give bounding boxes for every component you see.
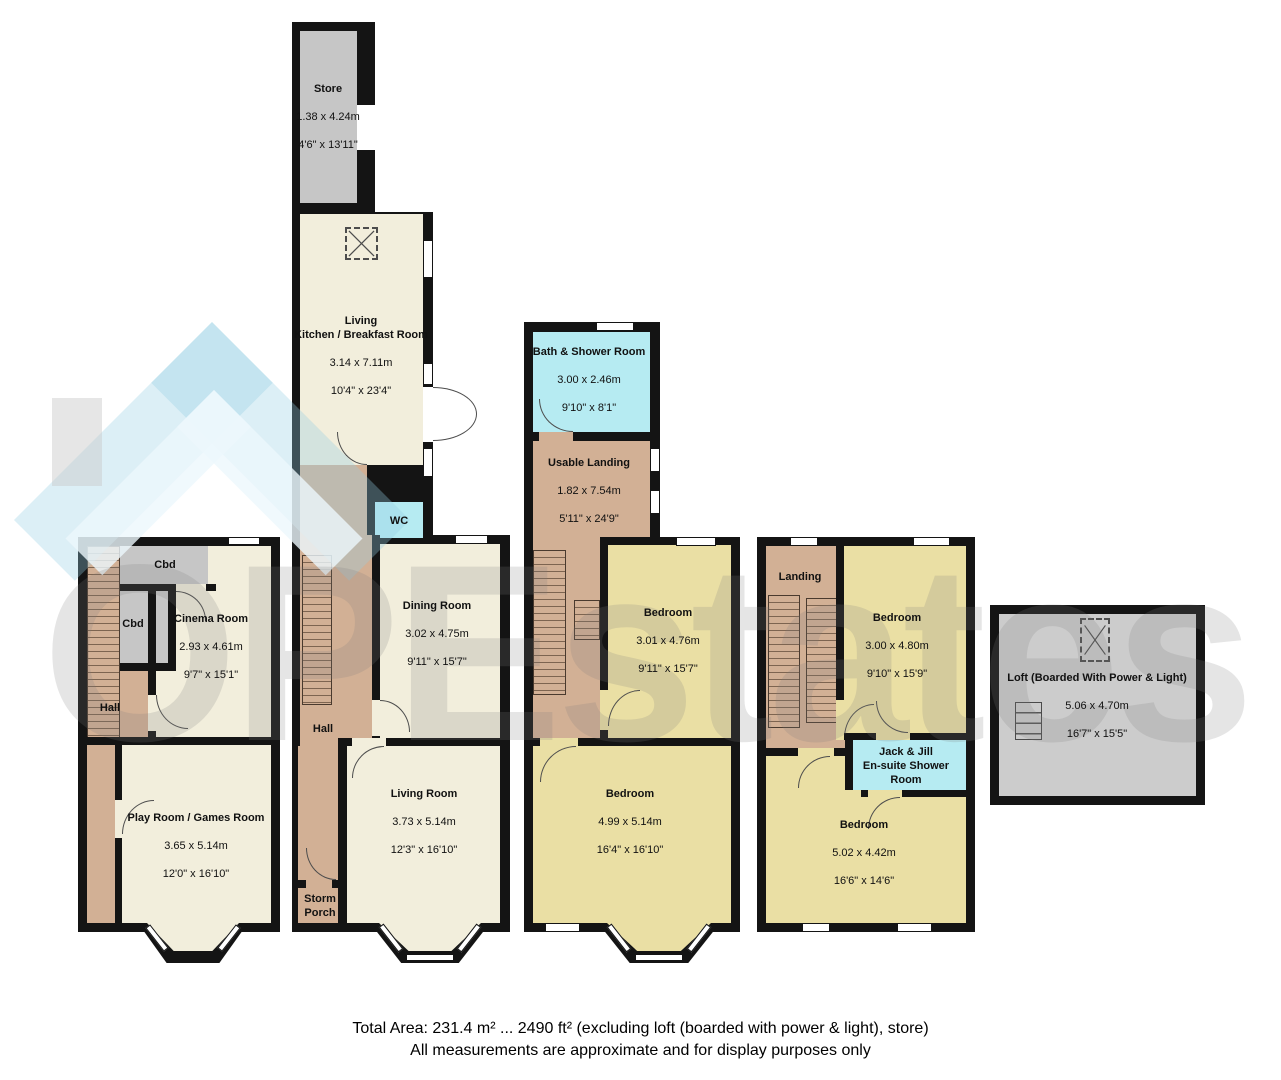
label-cbd1: Cbd bbox=[154, 544, 175, 586]
door-gap bbox=[539, 432, 573, 441]
room-name: Hall bbox=[313, 722, 333, 736]
room-dim-imperial: 9'10" x 8'1" bbox=[533, 401, 645, 415]
room-dim-metric: 3.73 x 5.14m bbox=[391, 815, 458, 829]
window bbox=[545, 923, 580, 932]
window bbox=[596, 322, 634, 331]
room-name: Bedroom bbox=[597, 787, 663, 801]
room-dim-imperial: 16'6" x 14'6" bbox=[832, 874, 896, 888]
label-usable-landing: Usable Landing 1.82 x 7.54m 5'11" x 24'9… bbox=[548, 442, 630, 540]
door-gap bbox=[176, 584, 206, 591]
room-dim-imperial: 16'4" x 16'10" bbox=[597, 843, 663, 857]
skylight-icon bbox=[345, 227, 378, 260]
window bbox=[423, 240, 433, 278]
room-dim-metric: 2.93 x 4.61m bbox=[174, 640, 248, 654]
door-gap bbox=[352, 738, 386, 746]
door-gap bbox=[148, 695, 156, 731]
label-bedroom1: Bedroom 3.01 x 4.76m 9'11" x 15'7" bbox=[636, 592, 700, 690]
room-name: Cinema Room bbox=[174, 612, 248, 626]
room-dim-imperial: 5'11" x 24'9" bbox=[548, 512, 630, 526]
hall-stair-landing bbox=[300, 465, 367, 545]
room-name: Cbd bbox=[154, 558, 175, 572]
room-dim-metric: 1.82 x 7.54m bbox=[548, 484, 630, 498]
room-name: Store bbox=[296, 82, 360, 96]
disclaimer-text: All measurements are approximate and for… bbox=[0, 1042, 1281, 1060]
label-loft: Loft (Boarded With Power & Light) 5.06 x… bbox=[1007, 657, 1187, 755]
room-dim-imperial: 9'10" x 15'9" bbox=[865, 667, 929, 681]
room-dim-imperial: 16'7" x 15'5" bbox=[1007, 727, 1187, 741]
label-bedroom4: Bedroom 5.02 x 4.42m 16'6" x 14'6" bbox=[832, 804, 896, 902]
total-area-text: Total Area: 231.4 m² ... 2490 ft² (exclu… bbox=[0, 1020, 1281, 1038]
wall bbox=[87, 737, 271, 745]
label-store: Store 1.38 x 4.24m 4'6" x 13'11" bbox=[296, 68, 360, 166]
label-hall-front: Hall bbox=[100, 687, 120, 729]
room-name: Bedroom bbox=[865, 611, 929, 625]
floorplan-canvas: Store 1.38 x 4.24m 4'6" x 13'11" Living … bbox=[0, 0, 1281, 1080]
loft-hatch-icon bbox=[1080, 618, 1110, 662]
door-gap bbox=[372, 700, 380, 736]
room-dim-metric: 3.00 x 4.80m bbox=[865, 639, 929, 653]
wall bbox=[845, 740, 853, 790]
room-name: Living Room bbox=[391, 787, 458, 801]
label-cbd2: Cbd bbox=[122, 603, 143, 645]
room-name: Loft (Boarded With Power & Light) bbox=[1007, 671, 1187, 685]
room-dim-metric: 4.99 x 5.14m bbox=[597, 815, 663, 829]
room-dim-imperial: 9'7" x 15'1" bbox=[174, 668, 248, 682]
label-bath: Bath & Shower Room 3.00 x 2.46m 9'10" x … bbox=[533, 331, 645, 429]
room-name: WC bbox=[390, 514, 408, 528]
window bbox=[802, 923, 830, 932]
window bbox=[790, 537, 818, 546]
label-cinema: Cinema Room 2.93 x 4.61m 9'7" x 15'1" bbox=[174, 598, 248, 696]
chimney-icon bbox=[52, 398, 102, 486]
bay-window-bedroom2 bbox=[598, 923, 720, 963]
room-dim-imperial: 9'11" x 15'7" bbox=[403, 655, 471, 669]
label-hall: Hall bbox=[313, 708, 333, 750]
room-name: Landing bbox=[779, 570, 822, 584]
staircase-second-floor-flight2 bbox=[806, 598, 840, 723]
door-gap bbox=[115, 800, 122, 838]
room-name: Hall bbox=[100, 701, 120, 715]
room-name: Bedroom bbox=[832, 818, 896, 832]
window bbox=[650, 490, 660, 514]
room-dim-imperial: 12'3" x 16'10" bbox=[391, 843, 458, 857]
window bbox=[635, 954, 683, 961]
label-bedroom2: Bedroom 4.99 x 5.14m 16'4" x 16'10" bbox=[597, 773, 663, 871]
room-dim-metric: 5.02 x 4.42m bbox=[832, 846, 896, 860]
door-gap bbox=[836, 700, 844, 740]
bay-window-living bbox=[370, 923, 490, 963]
label-storm-porch: Storm Porch bbox=[304, 878, 336, 934]
bay-window-playroom bbox=[138, 923, 248, 963]
room-dim-metric: 5.06 x 4.70m bbox=[1007, 699, 1187, 713]
room-dim-metric: 3.65 x 5.14m bbox=[128, 839, 265, 853]
door-gap bbox=[798, 748, 834, 756]
room-name: Storm Porch bbox=[304, 892, 336, 920]
room-name: Bedroom bbox=[636, 606, 700, 620]
window bbox=[650, 448, 660, 472]
room-name: Living Kitchen / Breakfast Room bbox=[294, 314, 428, 342]
window bbox=[455, 535, 488, 544]
room-dim-imperial: 10'4" x 23'4" bbox=[294, 384, 428, 398]
staircase-second-floor bbox=[768, 595, 800, 728]
room-name: Jack & Jill En-suite Shower Room bbox=[863, 745, 949, 787]
room-dim-imperial: 9'11" x 15'7" bbox=[636, 662, 700, 676]
room-dim-metric: 3.01 x 4.76m bbox=[636, 634, 700, 648]
window bbox=[406, 954, 454, 961]
staircase-first-floor bbox=[533, 550, 566, 695]
label-jack-jill: Jack & Jill En-suite Shower Room bbox=[863, 731, 949, 801]
room-dim-imperial: 12'0" x 16'10" bbox=[128, 867, 265, 881]
room-dim-metric: 3.14 x 7.11m bbox=[294, 356, 428, 370]
label-playroom: Play Room / Games Room 3.65 x 5.14m 12'0… bbox=[128, 797, 265, 895]
label-living: Living Room 3.73 x 5.14m 12'3" x 16'10" bbox=[391, 773, 458, 871]
room-dim-imperial: 4'6" x 13'11" bbox=[296, 138, 360, 152]
room-dim-metric: 3.02 x 4.75m bbox=[403, 627, 471, 641]
label-landing: Landing bbox=[779, 556, 822, 598]
room-name: Play Room / Games Room bbox=[128, 811, 265, 825]
staircase-first-floor-flight2 bbox=[574, 600, 600, 640]
french-door-arc bbox=[433, 414, 477, 441]
label-wc: WC bbox=[390, 500, 408, 542]
window bbox=[897, 923, 932, 932]
room-dim-metric: 3.00 x 2.46m bbox=[533, 373, 645, 387]
room-dim-metric: 1.38 x 4.24m bbox=[296, 110, 360, 124]
wall bbox=[338, 746, 347, 923]
label-bedroom3: Bedroom 3.00 x 4.80m 9'10" x 15'9" bbox=[865, 597, 929, 695]
window bbox=[676, 537, 716, 546]
label-dining: Dining Room 3.02 x 4.75m 9'11" x 15'7" bbox=[403, 585, 471, 683]
room-name: Usable Landing bbox=[548, 456, 630, 470]
window bbox=[423, 448, 433, 477]
room-name: Bath & Shower Room bbox=[533, 345, 645, 359]
room-name: Cbd bbox=[122, 617, 143, 631]
window bbox=[913, 537, 950, 546]
door-gap bbox=[600, 690, 608, 730]
door-gap bbox=[540, 738, 578, 746]
window bbox=[228, 537, 260, 545]
french-door-arc bbox=[433, 387, 477, 414]
label-kitchen: Living Kitchen / Breakfast Room 3.14 x 7… bbox=[294, 300, 428, 412]
room-name: Dining Room bbox=[403, 599, 471, 613]
staircase-hall bbox=[302, 555, 332, 705]
